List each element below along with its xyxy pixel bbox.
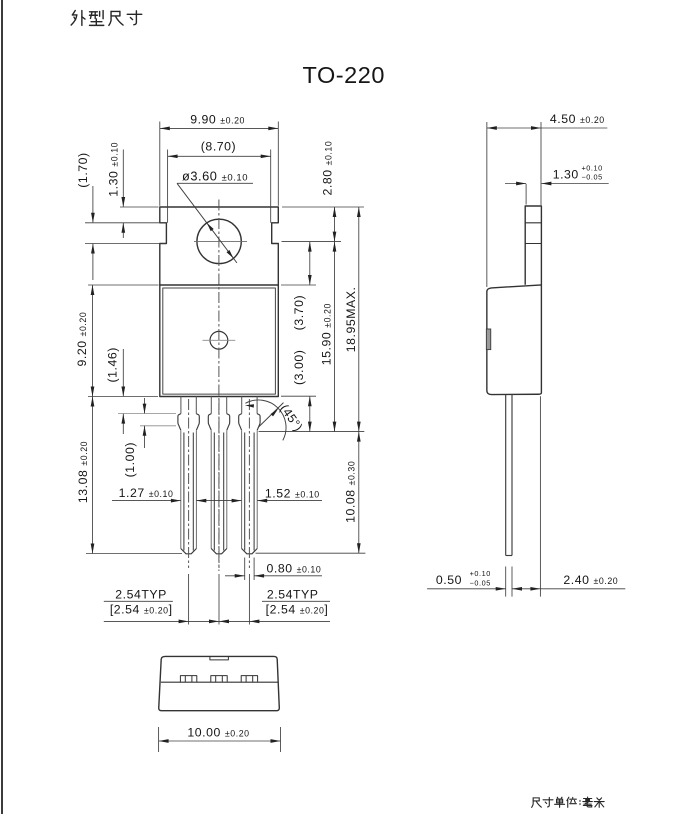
svg-text:10.08 ±0.30: 10.08 ±0.30: [343, 461, 357, 523]
svg-text:0.50: 0.50: [436, 573, 462, 587]
svg-text:13.08 ±0.20: 13.08 ±0.20: [76, 441, 90, 503]
svg-text:10.00 ±0.20: 10.00 ±0.20: [187, 726, 249, 740]
svg-text:1.30 ±0.10: 1.30 ±0.10: [107, 142, 121, 197]
svg-text:2.40 ±0.20: 2.40 ±0.20: [563, 573, 618, 587]
svg-text:+0.10: +0.10: [582, 163, 603, 172]
svg-text:4.50 ±0.20: 4.50 ±0.20: [550, 112, 605, 126]
svg-text:+0.10: +0.10: [470, 569, 491, 578]
svg-text:[2.54 ±0.20]: [2.54 ±0.20]: [266, 603, 329, 617]
svg-text:(1.00): (1.00): [123, 442, 137, 477]
svg-text:15.90 ±0.20: 15.90 ±0.20: [319, 303, 333, 365]
svg-text:(8.70): (8.70): [201, 140, 236, 154]
svg-text:(3.70): (3.70): [292, 295, 306, 330]
svg-text:2.54TYP: 2.54TYP: [115, 587, 167, 601]
svg-text:(1.70): (1.70): [76, 152, 90, 187]
svg-text:2.54TYP: 2.54TYP: [267, 587, 319, 601]
svg-text:18.95MAX.: 18.95MAX.: [344, 287, 358, 353]
svg-text:0.80 ±0.10: 0.80 ±0.10: [267, 562, 322, 576]
svg-text:ø3.60 ±0.10: ø3.60 ±0.10: [182, 168, 248, 183]
svg-text:1.30: 1.30: [553, 168, 579, 182]
svg-text:2.80 ±0.10: 2.80 ±0.10: [321, 141, 335, 196]
svg-text:TO-220: TO-220: [303, 62, 386, 88]
svg-text:1.27 ±0.10: 1.27 ±0.10: [119, 486, 174, 500]
svg-text:9.90 ±0.20: 9.90 ±0.20: [190, 113, 245, 127]
svg-text:[2.54 ±0.20]: [2.54 ±0.20]: [110, 603, 173, 617]
svg-text:(45°): (45°): [277, 402, 305, 434]
svg-text:9.20 ±0.20: 9.20 ±0.20: [75, 312, 89, 367]
svg-text:−0.05: −0.05: [470, 578, 491, 587]
svg-text:1.52 ±0.10: 1.52 ±0.10: [265, 486, 320, 500]
svg-text:−0.05: −0.05: [582, 173, 603, 182]
svg-text:(1.46): (1.46): [106, 347, 120, 382]
svg-text:(3.00): (3.00): [292, 350, 306, 385]
